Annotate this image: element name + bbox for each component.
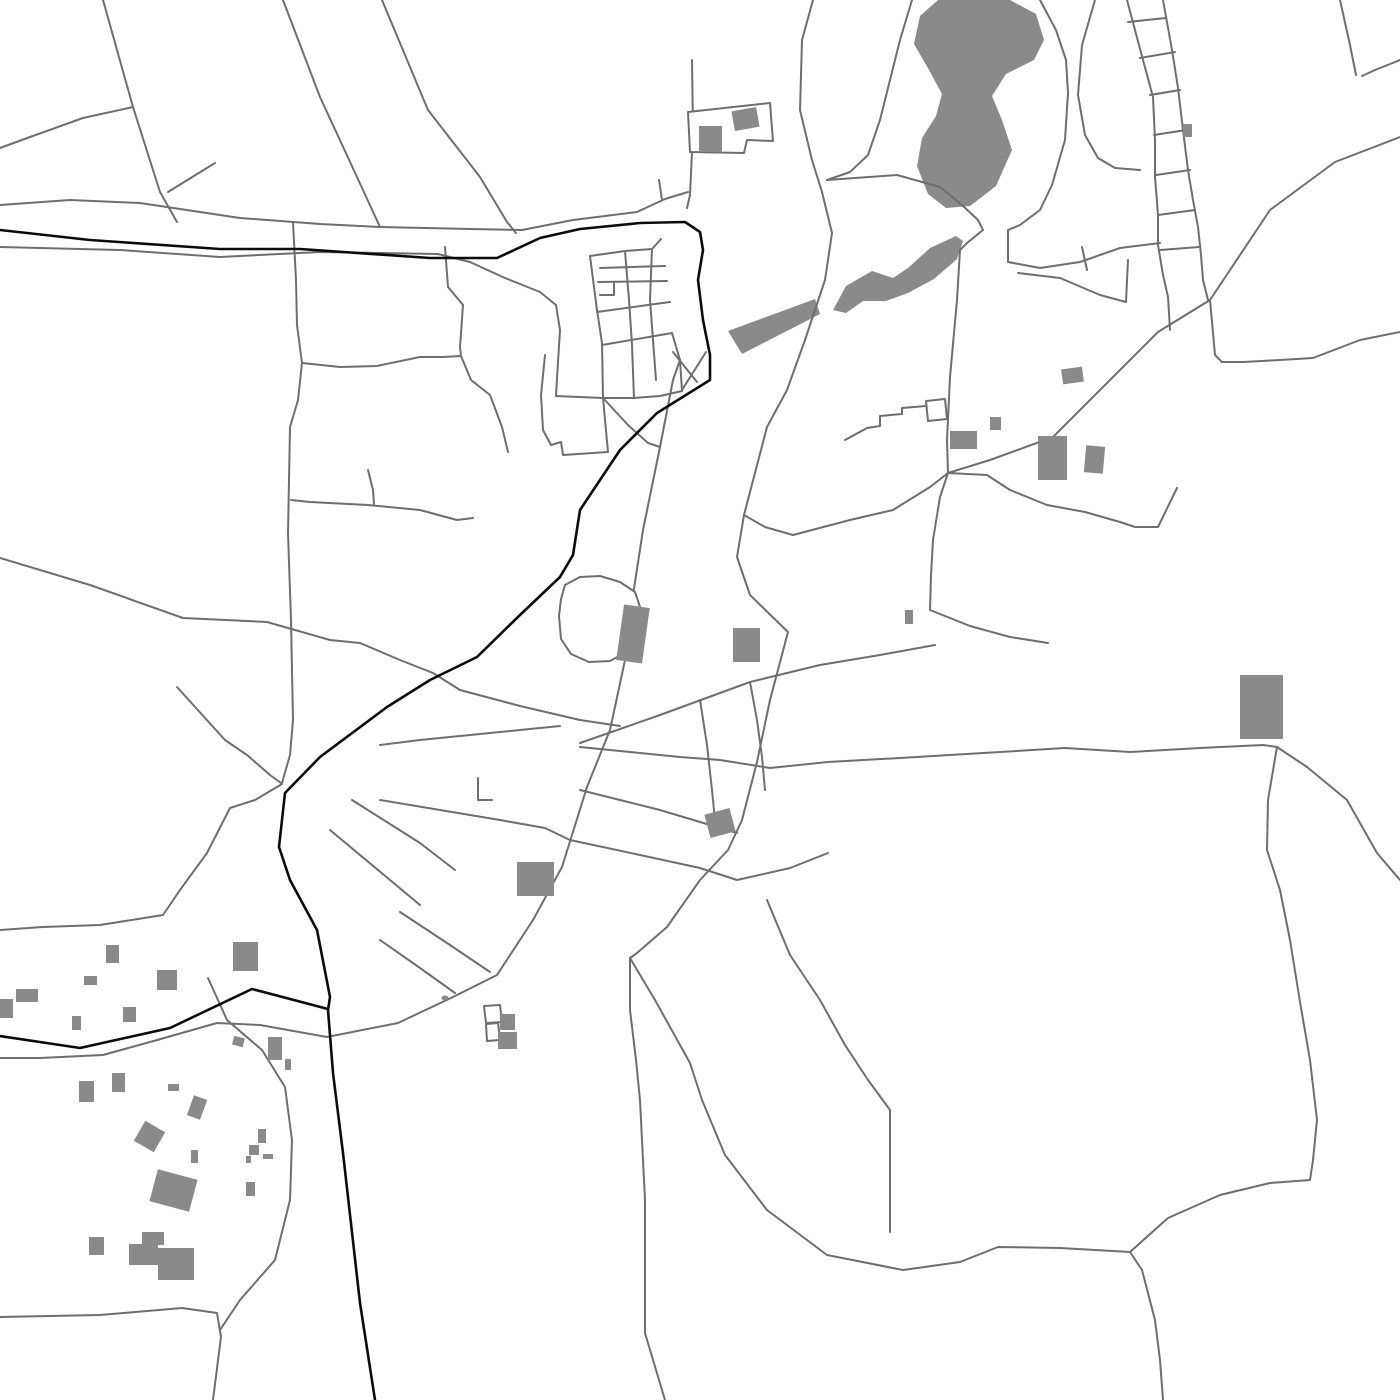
- building-footprint: [733, 628, 760, 662]
- building-footprint: [123, 1007, 136, 1022]
- building-footprint: [1183, 124, 1192, 137]
- building-footprint: [1084, 445, 1105, 474]
- building-footprint: [16, 989, 38, 1002]
- poi-dot-layer: [442, 996, 449, 1001]
- building-footprint: [233, 942, 258, 971]
- building-footprint: [106, 945, 119, 963]
- building-footprint: [89, 1237, 104, 1255]
- outlined-parcel: [484, 1005, 502, 1023]
- building-footprint: [158, 1248, 194, 1280]
- building-footprint: [731, 107, 759, 131]
- building-footprint: [157, 970, 177, 990]
- building-footprint: [258, 1129, 266, 1143]
- outlined-parcel: [486, 1023, 500, 1041]
- building-footprint: [168, 1084, 179, 1091]
- building-footprint: [950, 431, 977, 449]
- city-map-canvas: [0, 0, 1400, 1400]
- building-footprint: [142, 1232, 164, 1245]
- building-footprint: [263, 1154, 273, 1159]
- building-footprint: [285, 1059, 291, 1070]
- building-footprint: [246, 1156, 251, 1163]
- building-footprint: [517, 862, 554, 896]
- building-footprint: [79, 1081, 94, 1102]
- building-footprint: [1038, 436, 1067, 480]
- building-footprint: [905, 610, 913, 624]
- building-footprint: [249, 1145, 259, 1155]
- building-footprint: [990, 417, 1001, 430]
- building-footprint: [1240, 675, 1283, 739]
- building-footprint: [498, 1032, 517, 1049]
- building-footprint: [84, 976, 97, 985]
- building-footprint: [129, 1244, 158, 1265]
- map-viewport: [0, 0, 1400, 1400]
- building-footprint: [500, 1014, 515, 1030]
- poi-dot: [442, 996, 449, 1001]
- building-footprint: [0, 999, 13, 1018]
- building-footprint: [112, 1073, 125, 1092]
- building-footprint: [268, 1037, 282, 1060]
- building-footprint: [246, 1182, 255, 1196]
- building-footprint: [191, 1150, 198, 1163]
- building-footprint: [72, 1016, 81, 1030]
- outlined-parcel: [926, 399, 947, 421]
- building-footprint: [699, 126, 722, 152]
- road-line: [598, 281, 667, 282]
- building-footprint: [1061, 367, 1084, 385]
